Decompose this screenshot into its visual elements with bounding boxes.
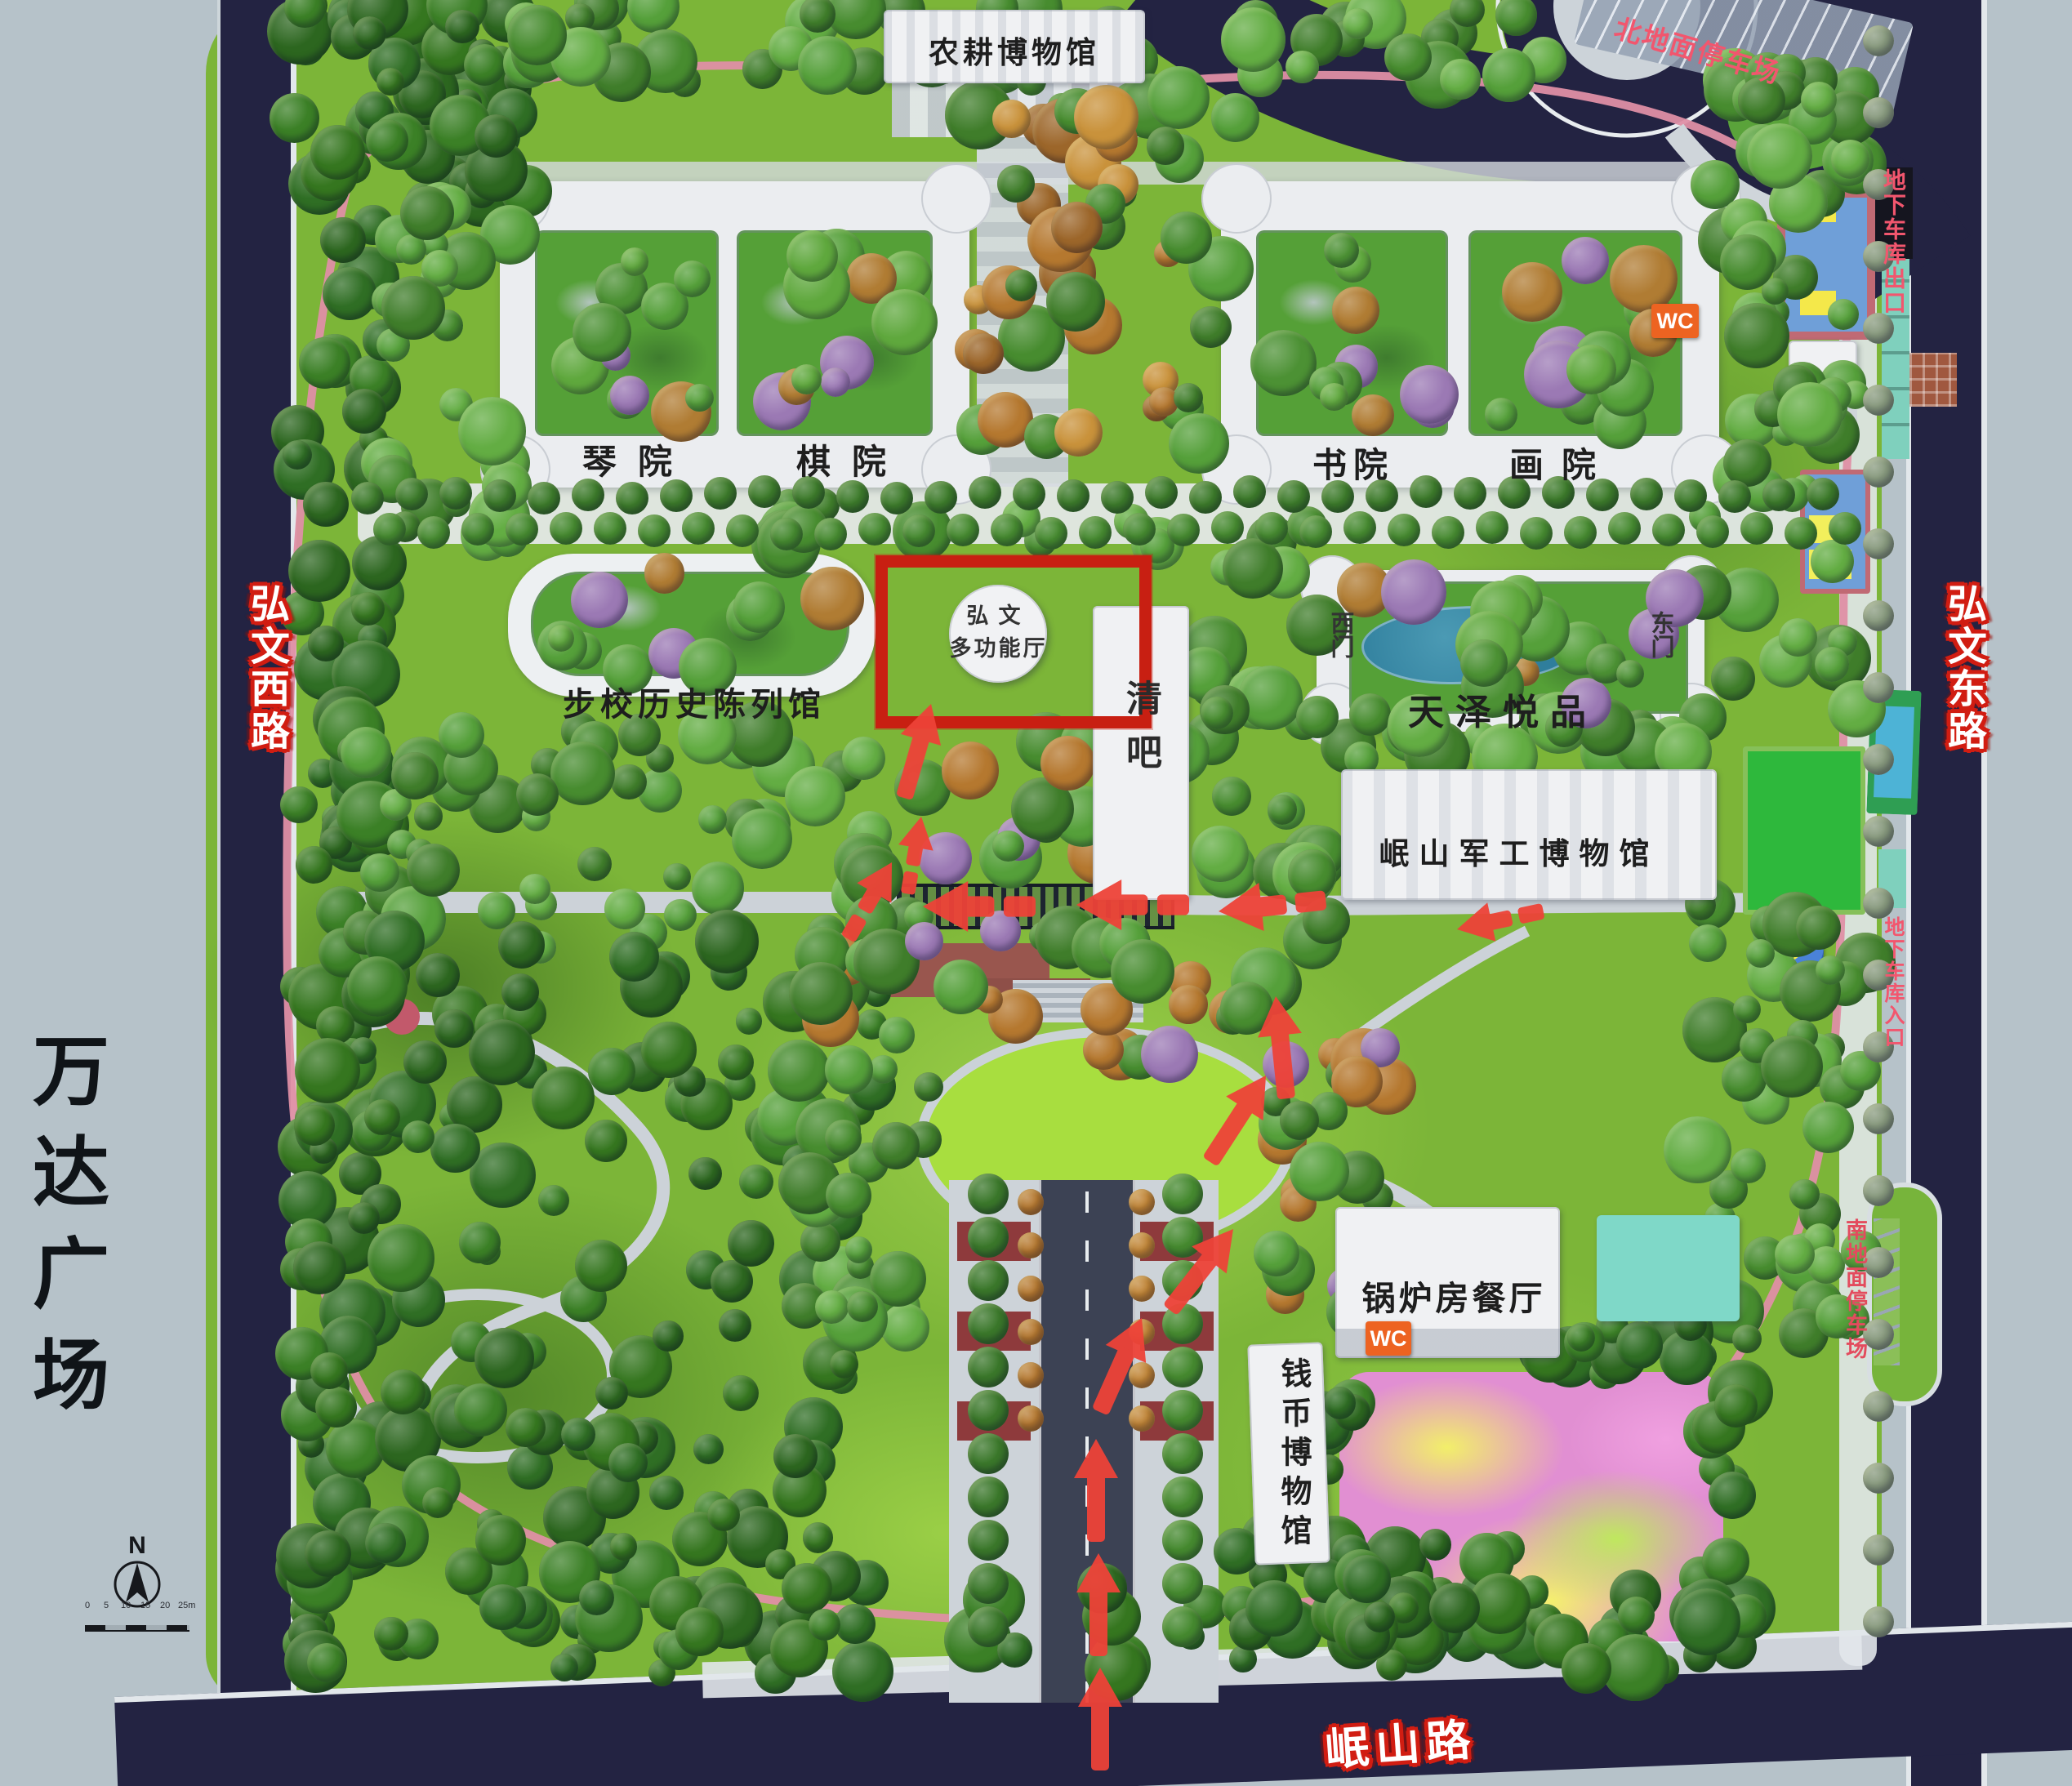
route-arrow (1080, 1309, 1162, 1421)
route-arrow (831, 853, 909, 949)
route-arrow (1152, 1215, 1250, 1324)
route-arrows-layer (0, 0, 2072, 1786)
park-master-plan-map: 农耕博物馆 琴院 棋院 书院 画院 步校历史陈列馆 弘文 多功能厅 清吧 天泽悦… (0, 0, 2072, 1786)
route-arrow (1078, 1668, 1122, 1770)
route-arrow (1192, 1063, 1285, 1174)
route-arrow (884, 698, 951, 804)
route-arrow (1074, 1439, 1118, 1542)
route-arrow (923, 881, 1036, 932)
route-arrow (1216, 876, 1328, 936)
route-arrow (1076, 880, 1189, 930)
route-arrow (890, 813, 938, 897)
route-arrow (1076, 1553, 1121, 1656)
route-arrow (1453, 892, 1548, 949)
